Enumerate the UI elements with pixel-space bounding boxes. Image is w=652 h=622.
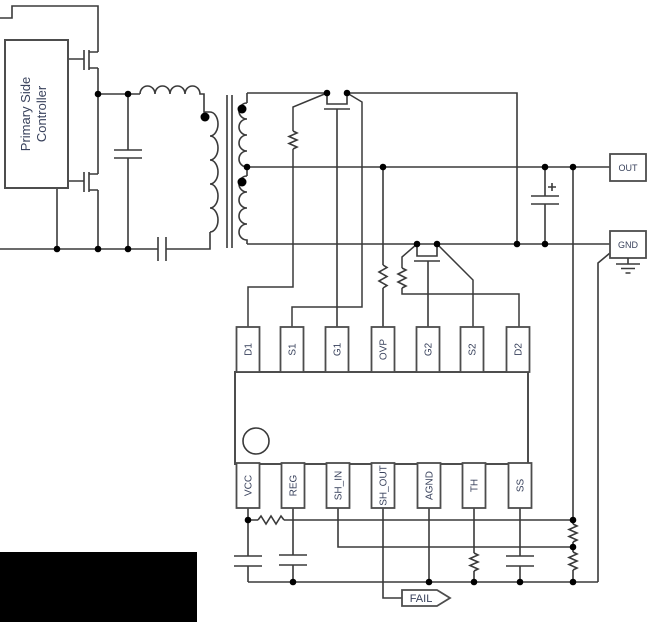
vcc-series-resistor-icon <box>258 516 284 524</box>
d2-sense-resistor-icon <box>398 268 406 288</box>
schematic-canvas: Primary Side Controller D1 S1 G1 OVP G2 <box>0 0 652 622</box>
svg-text:SH_OUT: SH_OUT <box>379 465 390 506</box>
output-capacitor-icon <box>531 167 559 244</box>
primary-phase-dot <box>201 113 210 122</box>
ovp-resistor-icon <box>379 265 387 288</box>
high-side-mosfet-icon <box>68 50 98 94</box>
low-side-mosfet-icon <box>68 172 98 249</box>
schematic-page: Primary Side Controller D1 S1 G1 OVP G2 <box>0 0 652 622</box>
ic-pin-ovp: OVP <box>372 327 395 372</box>
secondary-top-phase-dot <box>238 105 247 114</box>
primary-controller-label-line1: Primary Side <box>18 77 33 151</box>
primary-side-controller-box: Primary Side Controller <box>5 40 68 188</box>
primary-capacitor-icon <box>114 94 142 249</box>
svg-text:D1: D1 <box>244 343 255 356</box>
ic-body <box>235 372 528 464</box>
resonant-inductor-icon <box>140 86 210 112</box>
secondary-bottom-phase-dot <box>238 178 247 187</box>
sync-fet-2-icon <box>402 244 519 327</box>
ic-pin-d1: D1 <box>237 327 260 372</box>
d1-sense-resistor-icon <box>289 131 297 149</box>
primary-controller-label-line2: Controller <box>34 85 49 142</box>
pin1-indicator-icon <box>243 428 269 454</box>
divider-lower-resistor-icon <box>569 552 577 570</box>
gnd-terminal: GND <box>610 231 646 273</box>
fail-flag: FAIL <box>402 590 450 606</box>
svg-text:G1: G1 <box>333 342 344 356</box>
svg-text:AGND: AGND <box>425 471 436 500</box>
ic-bottom-wiring <box>234 508 598 598</box>
ic-pin-reg: REG <box>282 463 305 508</box>
th-resistor-icon <box>470 553 478 571</box>
transformer-icon <box>201 93 248 248</box>
ic-pin-s2: S2 <box>461 327 484 372</box>
svg-text:S1: S1 <box>288 343 299 356</box>
ic-pin-agnd: AGND <box>418 463 441 508</box>
sync-rectifier-ic: D1 S1 G1 OVP G2 S2 D2 VCC <box>235 327 532 508</box>
sh-out-wire <box>383 508 402 598</box>
ic-pin-g1: G1 <box>326 327 349 372</box>
fail-flag-label: FAIL <box>410 593 433 605</box>
ic-pin-vcc: VCC <box>237 463 260 508</box>
sh-in-wire <box>338 508 573 547</box>
switch-node-wire <box>98 94 140 174</box>
out-terminal: OUT <box>610 154 646 181</box>
gnd-terminal-label: GND <box>618 240 639 250</box>
out-terminal-label: OUT <box>619 163 639 173</box>
ic-pin-s1: S1 <box>281 327 304 372</box>
junction-dots <box>54 90 577 586</box>
vcc-wire <box>234 508 573 582</box>
sync-fet-1-icon <box>248 93 362 327</box>
ic-pin-sh-out: SH_OUT <box>372 463 395 508</box>
svg-text:REG: REG <box>289 474 300 496</box>
earth-ground-icon <box>616 258 640 273</box>
svg-text:VCC: VCC <box>244 475 255 496</box>
ic-pin-g2: G2 <box>417 327 440 372</box>
svg-text:OVP: OVP <box>379 339 390 360</box>
svg-text:G2: G2 <box>424 342 435 356</box>
svg-text:SH_IN: SH_IN <box>334 471 345 500</box>
svg-text:SS: SS <box>516 479 527 493</box>
ic-pin-sh-in: SH_IN <box>327 463 350 508</box>
resonant-capacitor-icon <box>158 232 210 261</box>
svg-text:D2: D2 <box>514 343 525 356</box>
ss-wire <box>506 508 534 582</box>
transformer-primary-winding <box>210 112 218 232</box>
transformer-core <box>227 95 232 248</box>
gnd-return-wire <box>598 253 610 582</box>
svg-text:S2: S2 <box>468 343 479 356</box>
output-capacitor-plus-sign <box>548 183 556 191</box>
redaction-block <box>0 552 197 622</box>
ic-pin-d2: D2 <box>507 327 530 372</box>
svg-text:TH: TH <box>470 479 481 492</box>
ic-pin-th: TH <box>463 463 486 508</box>
divider-upper-resistor-icon <box>569 524 577 542</box>
ic-pin-ss: SS <box>509 463 532 508</box>
